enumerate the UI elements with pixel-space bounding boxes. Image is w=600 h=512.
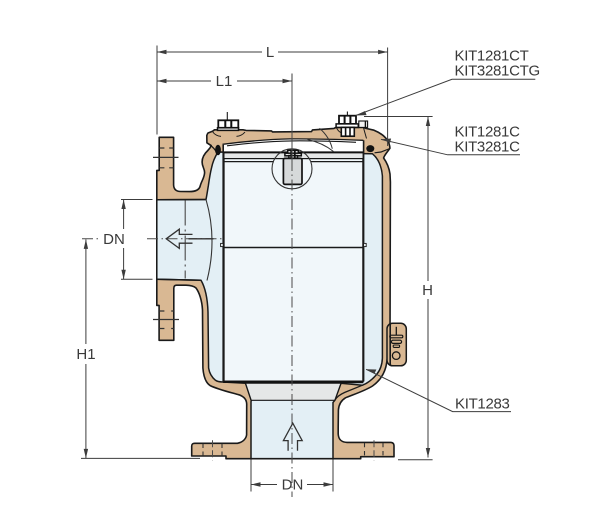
- svg-text:KIT3281C: KIT3281C: [455, 139, 521, 156]
- svg-text:H: H: [422, 282, 433, 299]
- svg-text:DN: DN: [103, 231, 125, 248]
- svg-text:KIT3281CTG: KIT3281CTG: [455, 63, 540, 80]
- svg-text:L: L: [266, 44, 274, 61]
- svg-text:L1: L1: [216, 73, 233, 90]
- svg-text:KIT1283: KIT1283: [455, 396, 510, 413]
- svg-text:H1: H1: [76, 346, 95, 363]
- svg-text:DN: DN: [282, 477, 304, 494]
